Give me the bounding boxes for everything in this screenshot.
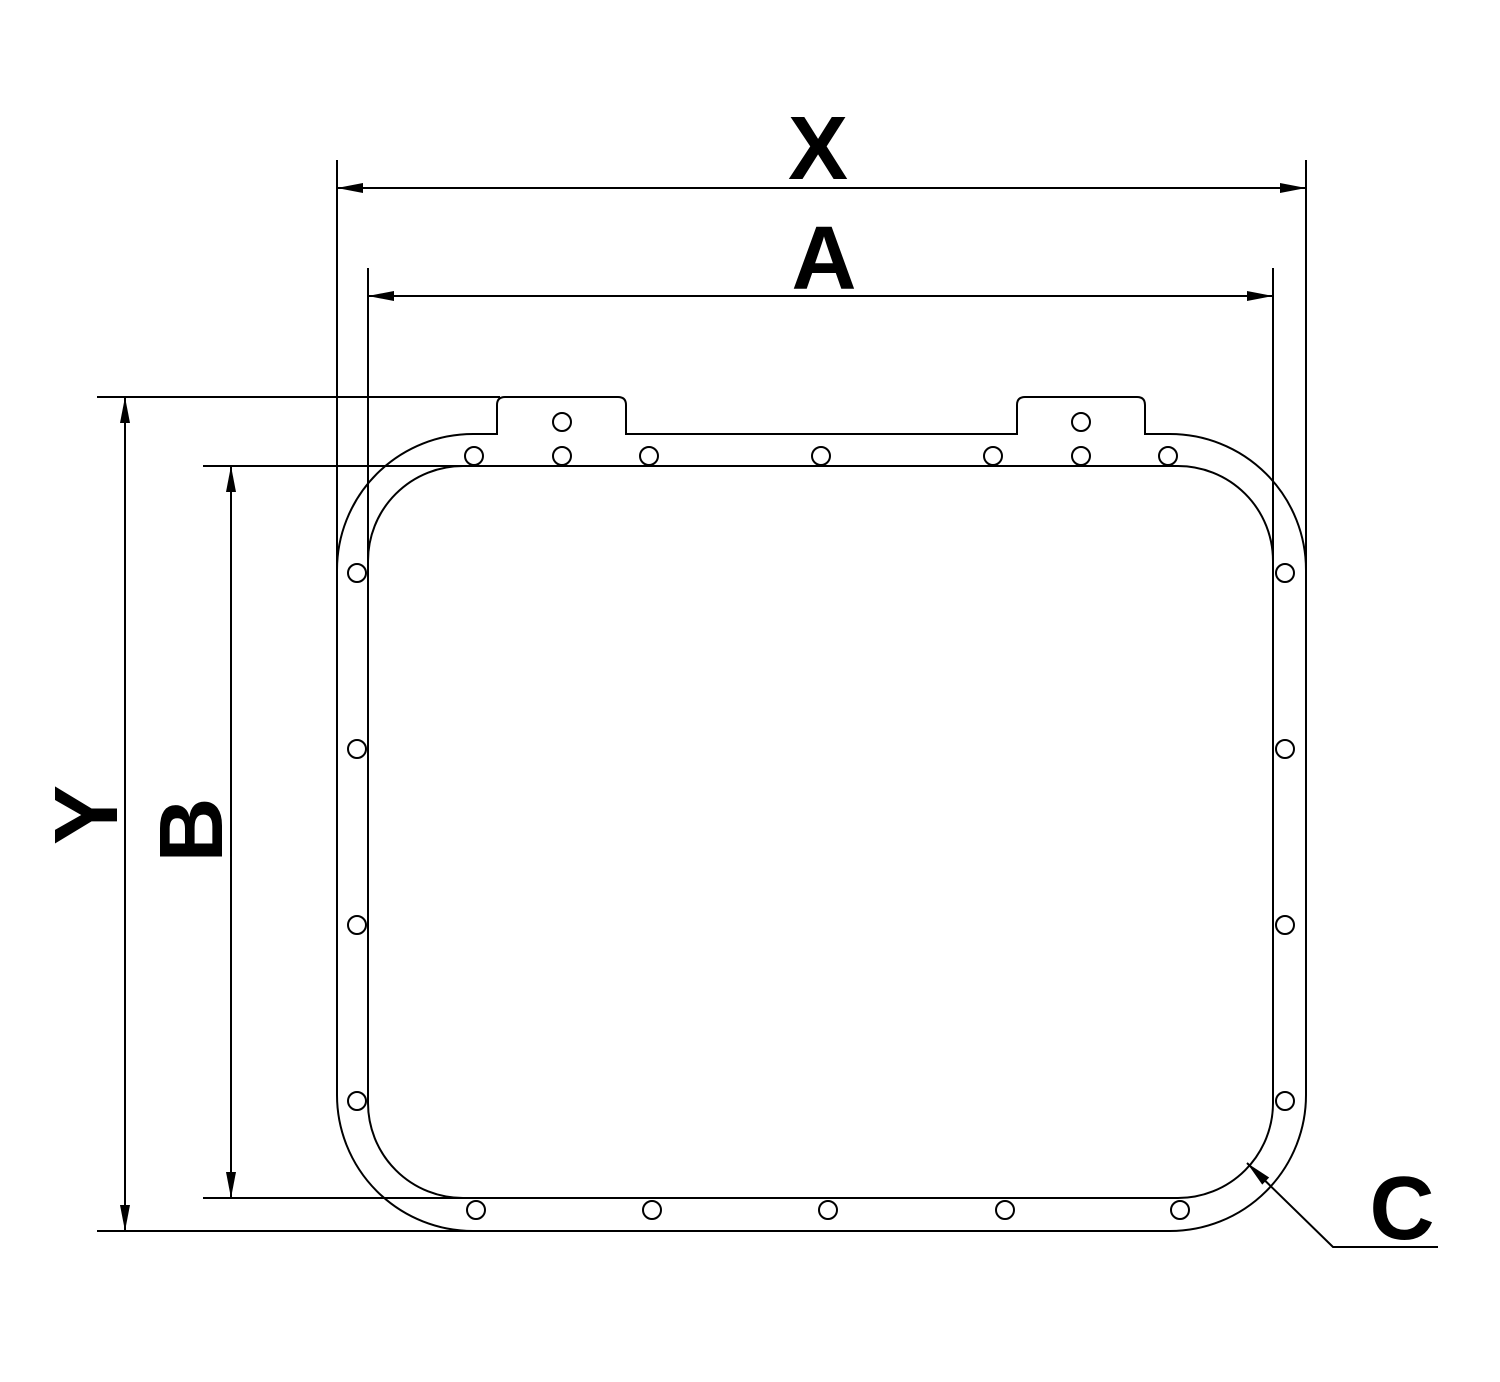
dimension-label-x: X <box>788 99 848 199</box>
bolt-hole <box>996 1201 1014 1219</box>
dimension-arrow-a <box>1247 291 1273 301</box>
bolt-hole <box>1276 916 1294 934</box>
dimension-arrow-a <box>368 291 394 301</box>
dimension-arrow-x <box>337 183 363 193</box>
bolt-hole <box>1072 447 1090 465</box>
bolt-hole <box>819 1201 837 1219</box>
hatch-frame-drawing: X A Y B C <box>0 0 1500 1382</box>
dimension-label-y: Y <box>37 785 137 845</box>
bolt-hole <box>1276 1092 1294 1110</box>
dimension-arrow-b <box>226 1172 236 1198</box>
dimension-label-b: B <box>142 798 242 863</box>
bolt-hole <box>1072 413 1090 431</box>
drawing-geometry <box>97 160 1438 1247</box>
bolt-hole <box>348 916 366 934</box>
dimension-arrow-y <box>120 1205 130 1231</box>
bolt-hole <box>553 413 571 431</box>
bolt-hole <box>812 447 830 465</box>
dimension-arrow-y <box>120 397 130 423</box>
technical-drawing-page: X A Y B C <box>0 0 1500 1382</box>
bolt-hole <box>348 564 366 582</box>
dimension-arrow-x <box>1280 183 1306 193</box>
bolt-hole <box>348 740 366 758</box>
dimension-arrow-b <box>226 466 236 492</box>
frame-outer-outline <box>337 397 1306 1231</box>
dimension-label-c: C <box>1370 1159 1435 1259</box>
bolt-hole <box>465 447 483 465</box>
bolt-hole <box>1159 447 1177 465</box>
bolt-hole <box>1171 1201 1189 1219</box>
bolt-hole <box>643 1201 661 1219</box>
bolt-hole <box>553 447 571 465</box>
bolt-hole <box>348 1092 366 1110</box>
bolt-hole <box>1276 564 1294 582</box>
frame-inner-opening <box>368 466 1273 1198</box>
bolt-hole <box>1276 740 1294 758</box>
bolt-hole <box>984 447 1002 465</box>
bolt-hole <box>640 447 658 465</box>
dimension-label-a: A <box>792 209 857 309</box>
bolt-hole <box>467 1201 485 1219</box>
